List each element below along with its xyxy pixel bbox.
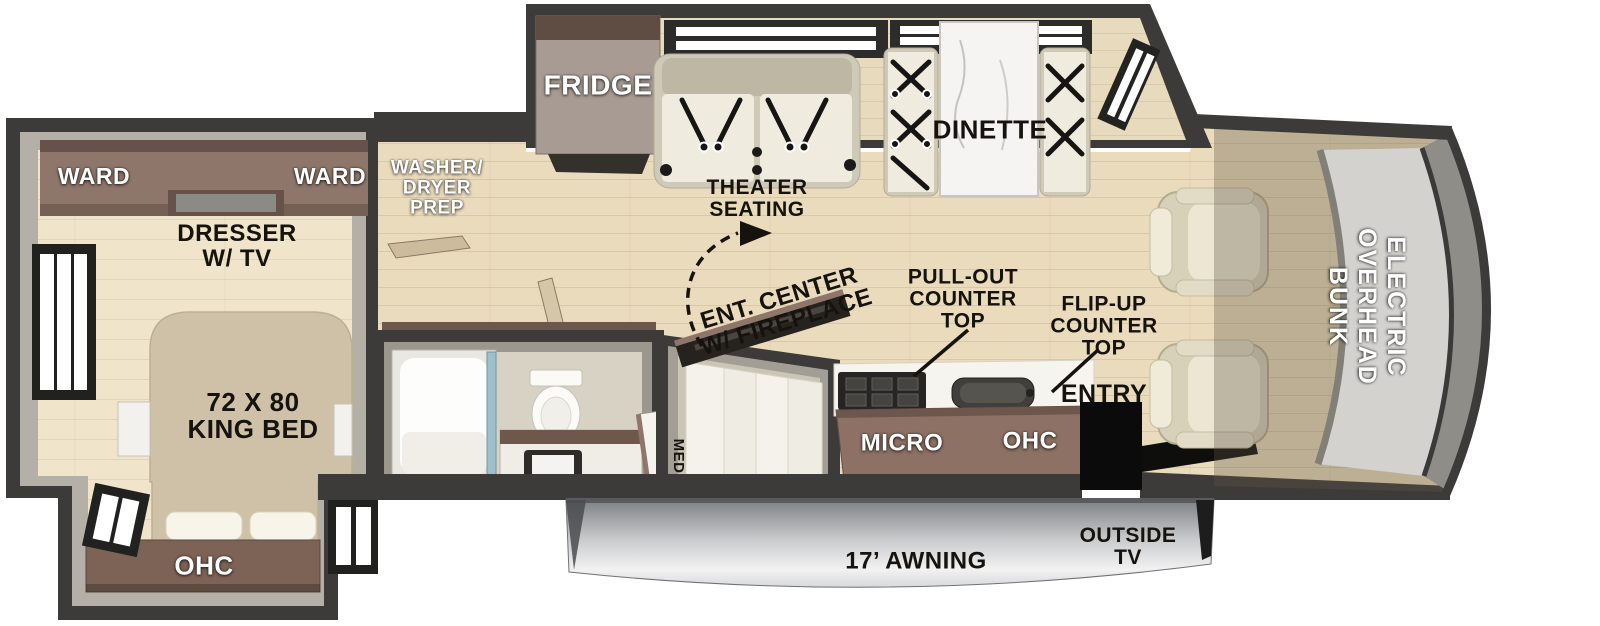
bedroom-block <box>6 118 378 620</box>
stove <box>838 372 926 410</box>
bottom-wall <box>318 474 1082 500</box>
fridge <box>536 16 660 174</box>
slideout-window-right <box>328 498 378 574</box>
floorplan-canvas: WARD WARD DRESSER W/ TV 72 X 80 KING BED… <box>0 0 1600 626</box>
nightstand <box>334 404 352 456</box>
top-wall <box>378 112 544 142</box>
pillow <box>166 512 242 540</box>
dinette-set <box>884 22 1090 196</box>
floorplan-drawing <box>0 0 1600 626</box>
theater-seats <box>654 54 860 188</box>
dinette-table <box>940 22 1038 196</box>
theater-window <box>664 20 888 58</box>
shower-glass <box>487 352 496 480</box>
sink <box>952 378 1034 408</box>
pillow <box>250 512 316 540</box>
dresser-tv <box>168 190 284 216</box>
awning <box>566 498 1214 587</box>
nightstand <box>118 402 150 456</box>
entry-door <box>1080 402 1142 490</box>
shower <box>392 350 496 482</box>
bedroom-window <box>32 244 96 400</box>
bathroom <box>372 322 672 500</box>
